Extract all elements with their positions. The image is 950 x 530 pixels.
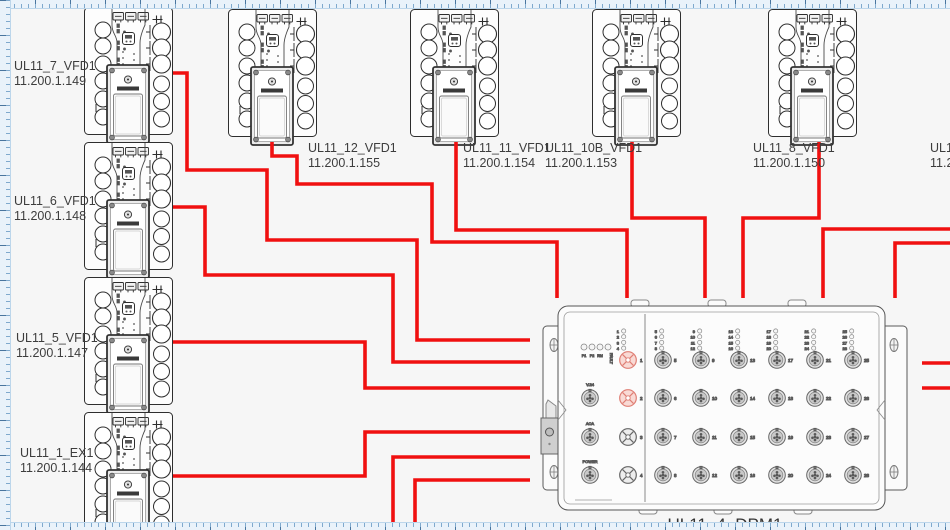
port-number: 11 — [712, 435, 717, 440]
status-led-rm — [597, 344, 603, 350]
led-indicator — [812, 346, 816, 350]
led-number: 28 — [843, 346, 848, 351]
dpm-port-18[interactable] — [769, 389, 786, 406]
led-indicator — [812, 340, 816, 344]
port-number: 15 — [750, 435, 756, 440]
dpm-port-9[interactable] — [693, 351, 710, 368]
led-indicator — [660, 346, 664, 350]
aux-port-label: POWER — [582, 459, 597, 464]
led-indicator — [736, 335, 740, 339]
device-name: UL11_11_VFD1 — [463, 141, 551, 156]
ruler-top — [0, 0, 950, 9]
led-indicator — [812, 329, 816, 333]
device-name: UL11_10B_VFD1 — [545, 141, 642, 156]
port-number: 20 — [788, 473, 794, 478]
cable-c7[interactable] — [823, 229, 950, 298]
led-indicator — [850, 335, 854, 339]
dpm-port-16[interactable] — [731, 466, 748, 483]
device-ip: 11.2 — [930, 156, 950, 171]
led-indicator — [622, 340, 626, 344]
led-indicator — [660, 329, 664, 333]
device-label-ul11-1-ex1: UL11_1_EX1 11.200.1.144 — [20, 446, 93, 475]
led-indicator — [622, 329, 626, 333]
led-indicator — [774, 329, 778, 333]
diagram-canvas: P1P2RMFAULTV.24ACAPOWER12341234567856789… — [0, 0, 950, 530]
port-number: 28 — [864, 473, 870, 478]
led-number: 10 — [691, 335, 696, 340]
device-name: UL11 — [930, 141, 950, 156]
device-name: UL11_1_EX1 — [20, 446, 93, 461]
aux-port-label: V.24 — [586, 382, 595, 387]
status-led-label: P2 — [590, 354, 594, 358]
device-name: UL11_8_VFD1 — [753, 141, 835, 156]
led-number: 19 — [767, 340, 772, 345]
vfd-device-ul11-8[interactable] — [769, 10, 857, 146]
led-indicator — [850, 346, 854, 350]
diagram-layer: P1P2RMFAULTV.24ACAPOWER12341234567856789… — [0, 0, 950, 530]
status-led-label: P1 — [582, 354, 586, 358]
dpm-port-14[interactable] — [731, 389, 748, 406]
device-name: UL11_6_VFD1 — [14, 194, 96, 209]
vfd-device-ul11-10b[interactable] — [593, 10, 681, 146]
port-number: 12 — [712, 473, 718, 478]
device-ip: 11.200.1.150 — [753, 156, 835, 171]
dpm-port-3[interactable] — [620, 429, 637, 446]
aux-port-label: ACA — [586, 421, 595, 426]
led-number: 24 — [805, 346, 810, 351]
dpm-port-4[interactable] — [620, 467, 637, 484]
device-label-ul11-10b: UL11_10B_VFD1 11.200.1.153 — [545, 141, 642, 170]
led-indicator — [698, 340, 702, 344]
port-number: 24 — [826, 473, 832, 478]
port-number: 19 — [788, 435, 794, 440]
dpm-port-22[interactable] — [807, 389, 824, 406]
status-led-fault — [605, 344, 611, 350]
device-ip: 11.200.1.148 — [14, 209, 96, 224]
vfd-device-ul11-11[interactable] — [411, 10, 499, 146]
led-indicator — [850, 329, 854, 333]
device-name: UL11_7_VFD1 — [14, 59, 96, 74]
port-number: 26 — [864, 396, 870, 401]
dpm-port-24[interactable] — [807, 466, 824, 483]
port-number: 22 — [826, 396, 832, 401]
cable-c8[interactable] — [895, 243, 950, 298]
dpm-port-19[interactable] — [769, 428, 786, 445]
dpm-port-8[interactable] — [655, 466, 672, 483]
cable-c5[interactable] — [632, 142, 705, 298]
dpm-port-15[interactable] — [731, 428, 748, 445]
device-label-ul11-7: UL11_7_VFD1 11.200.1.149 — [14, 59, 96, 88]
device-label-ul11-5: UL11_5_VFD1 11.200.1.147 — [16, 331, 98, 360]
led-number: 23 — [805, 340, 810, 345]
led-indicator — [736, 329, 740, 333]
dpm-port-7[interactable] — [655, 428, 672, 445]
port-number: 25 — [864, 358, 870, 363]
device-label-ul11-8: UL11_8_VFD1 11.200.1.150 — [753, 141, 835, 170]
status-led-p2 — [589, 344, 595, 350]
port-number: 16 — [750, 473, 756, 478]
device-label-ul11-6: UL11_6_VFD1 11.200.1.148 — [14, 194, 96, 223]
port-number: 13 — [750, 358, 756, 363]
led-number: 26 — [843, 335, 848, 340]
device-ip: 11.200.1.144 — [20, 461, 93, 476]
dpm-port-5[interactable] — [655, 351, 672, 368]
vfd-device-ul11-1-ex1[interactable] — [85, 413, 173, 530]
aux-port-aca[interactable] — [582, 428, 599, 445]
led-number: 16 — [729, 346, 734, 351]
device-ip: 11.200.1.147 — [16, 346, 98, 361]
cable-c9[interactable] — [173, 342, 530, 388]
ruler-left — [0, 0, 11, 530]
device-name: UL11_5_VFD1 — [16, 331, 98, 346]
port-number: 14 — [750, 396, 756, 401]
dpm-port-27[interactable] — [845, 428, 862, 445]
led-number: 12 — [691, 346, 696, 351]
cable-c10[interactable] — [173, 432, 530, 476]
led-number: 13 — [729, 329, 734, 334]
dpm-port-17[interactable] — [769, 351, 786, 368]
port-number: 27 — [864, 435, 870, 440]
dpm-port-26[interactable] — [845, 389, 862, 406]
dpm-port-25[interactable] — [845, 351, 862, 368]
led-indicator — [698, 346, 702, 350]
port-number: 17 — [788, 358, 794, 363]
device-name: UL11_12_VFD1 — [308, 141, 397, 156]
led-indicator — [850, 340, 854, 344]
device-ip: 11.200.1.154 — [463, 156, 551, 171]
ruler-bottom — [0, 522, 950, 530]
led-indicator — [660, 340, 664, 344]
led-number: 20 — [767, 346, 772, 351]
led-indicator — [698, 329, 702, 333]
led-indicator — [774, 346, 778, 350]
dpm-port-23[interactable] — [807, 428, 824, 445]
vfd-device-ul11-7[interactable] — [85, 8, 173, 144]
vfd-device-ul11-6[interactable] — [85, 143, 173, 279]
device-ip: 11.200.1.149 — [14, 74, 96, 89]
led-indicator — [698, 335, 702, 339]
dpm-port-10[interactable] — [693, 389, 710, 406]
device-ip: 11.200.1.153 — [545, 156, 642, 171]
led-indicator — [812, 335, 816, 339]
status-led-p1 — [581, 344, 587, 350]
led-indicator — [774, 335, 778, 339]
status-led-label: FAULT — [609, 353, 613, 365]
dpm-port-6[interactable] — [655, 389, 672, 406]
led-number: 15 — [729, 340, 734, 345]
dpm-port-28[interactable] — [845, 466, 862, 483]
led-number: 17 — [767, 329, 772, 334]
dpm-port-2[interactable] — [620, 390, 637, 407]
led-number: 14 — [729, 335, 734, 340]
device-label-ul11-11: UL11_11_VFD1 11.200.1.154 — [463, 141, 551, 170]
led-number: 18 — [767, 335, 772, 340]
led-indicator — [622, 346, 626, 350]
device-label-ul11-12: UL11_12_VFD1 11.200.1.155 — [308, 141, 397, 170]
led-number: 22 — [805, 335, 810, 340]
led-indicator — [736, 346, 740, 350]
device-label-clipped: UL11 11.2 — [930, 141, 950, 170]
dpm-port-13[interactable] — [731, 351, 748, 368]
led-indicator — [774, 340, 778, 344]
port-number: 23 — [826, 435, 832, 440]
dpm-port-11[interactable] — [693, 428, 710, 445]
dpm-port-12[interactable] — [693, 466, 710, 483]
dpm-port-1[interactable] — [620, 352, 637, 369]
led-number: 21 — [805, 329, 810, 334]
led-number: 25 — [843, 329, 848, 334]
port-number: 18 — [788, 396, 794, 401]
dpm-device[interactable]: P1P2RMFAULTV.24ACAPOWER12341234567856789… — [541, 300, 907, 514]
led-number: 27 — [843, 340, 848, 345]
device-ip: 11.200.1.155 — [308, 156, 397, 171]
aux-port-power[interactable] — [582, 466, 599, 483]
status-led-label: RM — [597, 354, 603, 358]
aux-port-v24[interactable] — [582, 389, 599, 406]
dpm-port-21[interactable] — [807, 351, 824, 368]
port-number: 10 — [712, 396, 718, 401]
led-indicator — [622, 335, 626, 339]
led-indicator — [660, 335, 664, 339]
port-number: 21 — [826, 358, 832, 363]
dpm-port-20[interactable] — [769, 466, 786, 483]
vfd-device-ul11-12[interactable] — [229, 10, 317, 146]
led-indicator — [736, 340, 740, 344]
